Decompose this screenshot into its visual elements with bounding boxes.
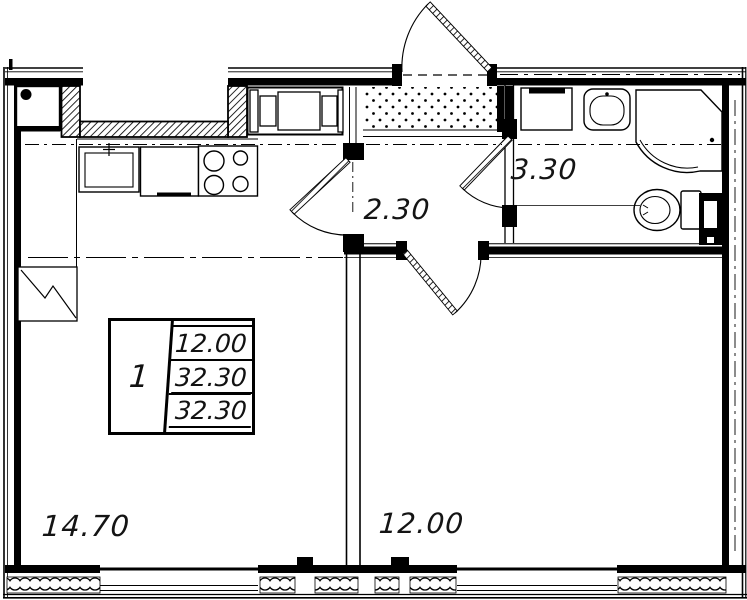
- living-room-door: [290, 158, 350, 235]
- washing-machine: [521, 88, 572, 130]
- stamp-total-area: 32.30: [169, 359, 254, 395]
- kitchen-sink: [79, 143, 139, 192]
- area-stamp-table: 1 12.00 32.30 32.30: [108, 318, 255, 435]
- stamp-living-area: 12.00: [169, 325, 254, 361]
- shower-cabin: [636, 90, 722, 172]
- wall-bedroom-north: [344, 241, 722, 260]
- entry-mat-stipple: [363, 87, 504, 137]
- stove: [199, 146, 258, 196]
- plumbing-shaft: [699, 193, 722, 245]
- room-label-bathroom-area: 3.30: [510, 153, 579, 186]
- apartment-floor-plan: 14.70 12.00 2.30 3.30 1 12.00 32.30 32.3…: [0, 0, 747, 600]
- stamp-areas-column: 12.00 32.30 32.30: [170, 321, 252, 432]
- window-living-room: [100, 568, 258, 591]
- bedroom-door: [403, 250, 481, 315]
- room-label-hall-area: 2.30: [363, 193, 432, 226]
- room-label-bedroom-area: 12.00: [378, 507, 465, 540]
- vent-duct-hatch: [62, 86, 248, 137]
- fridge-symbol: [18, 267, 77, 321]
- room-label-living-area: 14.70: [41, 509, 131, 543]
- bathroom-door: [460, 136, 512, 208]
- window-bedroom: [457, 568, 617, 591]
- entry-door: [392, 2, 497, 86]
- utility-riser: [16, 86, 60, 132]
- toilet: [634, 190, 701, 231]
- built-in-wardrobe: [248, 88, 344, 135]
- bathroom-sink: [584, 89, 630, 130]
- stamp-room-count: 1: [107, 321, 174, 432]
- stamp-total-area-with-summer: 32.30: [169, 392, 254, 428]
